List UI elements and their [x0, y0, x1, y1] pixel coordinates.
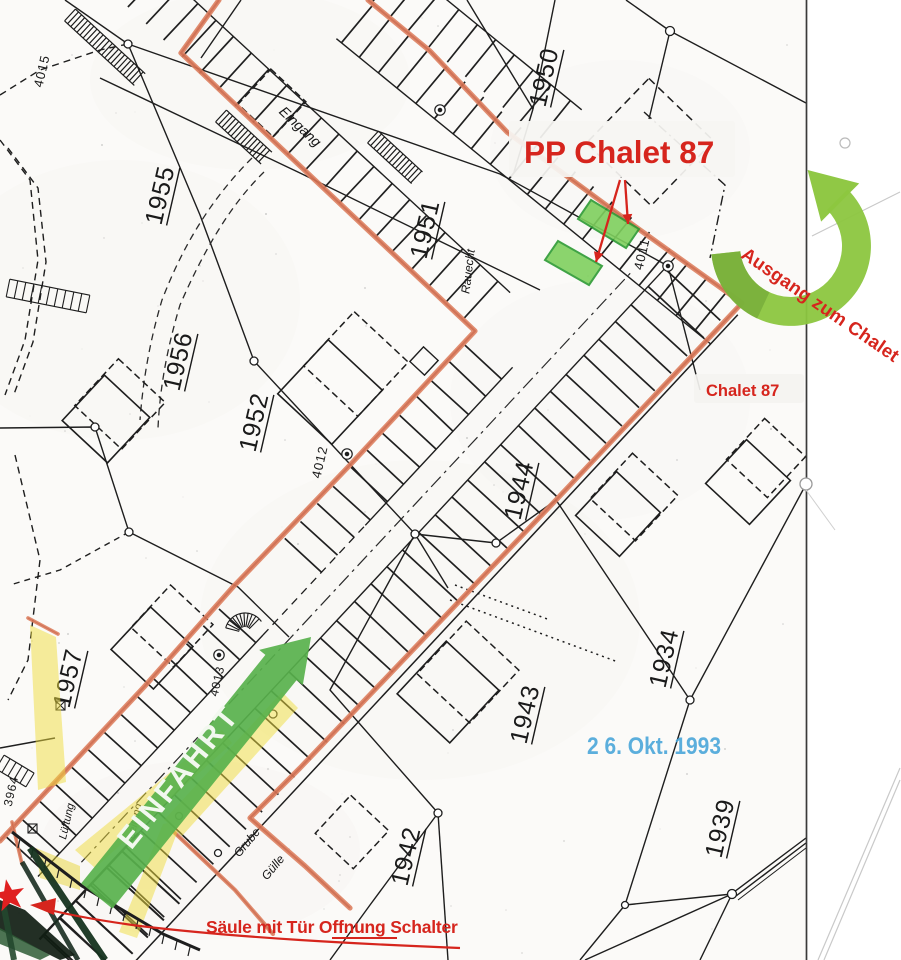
svg-text:Chalet 87: Chalet 87 — [706, 382, 779, 400]
svg-text:PP Chalet 87: PP Chalet 87 — [524, 134, 714, 170]
svg-text:2 6. Okt. 1993: 2 6. Okt. 1993 — [587, 733, 721, 760]
svg-text:Säule mit Tür Offnung Schalter: Säule mit Tür Offnung Schalter — [206, 917, 458, 937]
